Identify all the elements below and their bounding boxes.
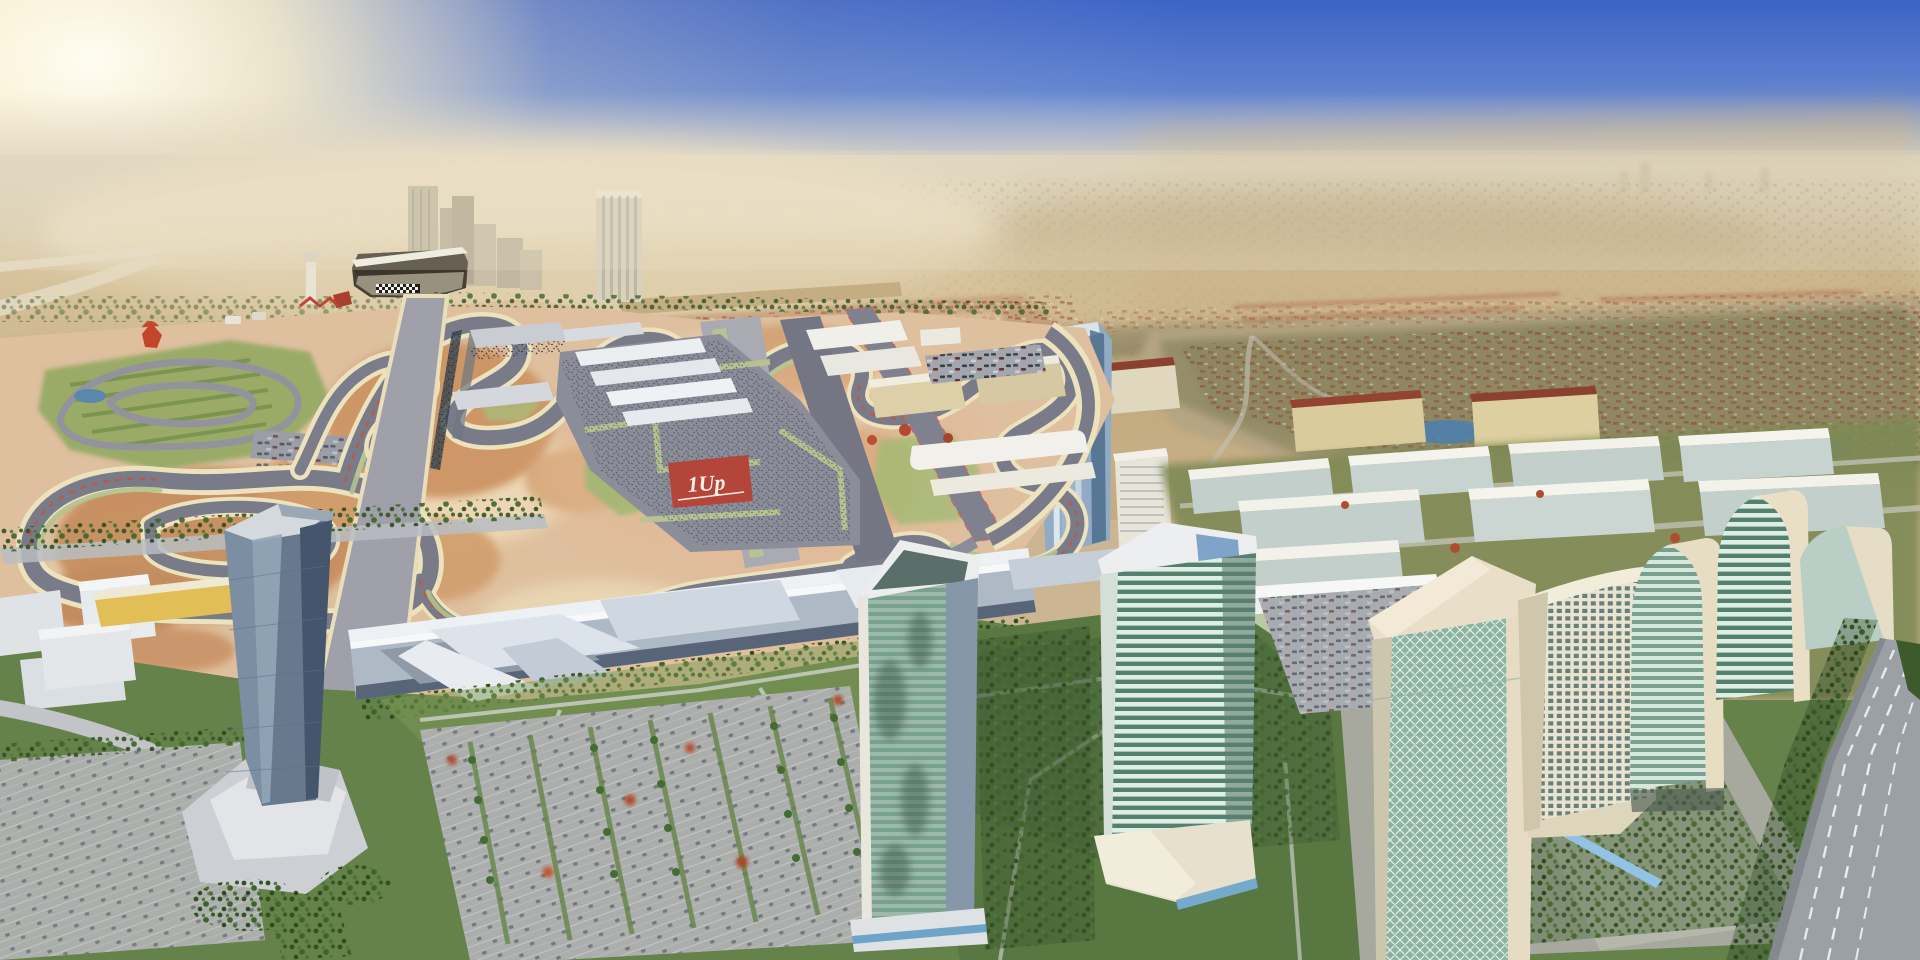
svg-text:1Up: 1Up — [687, 469, 727, 497]
